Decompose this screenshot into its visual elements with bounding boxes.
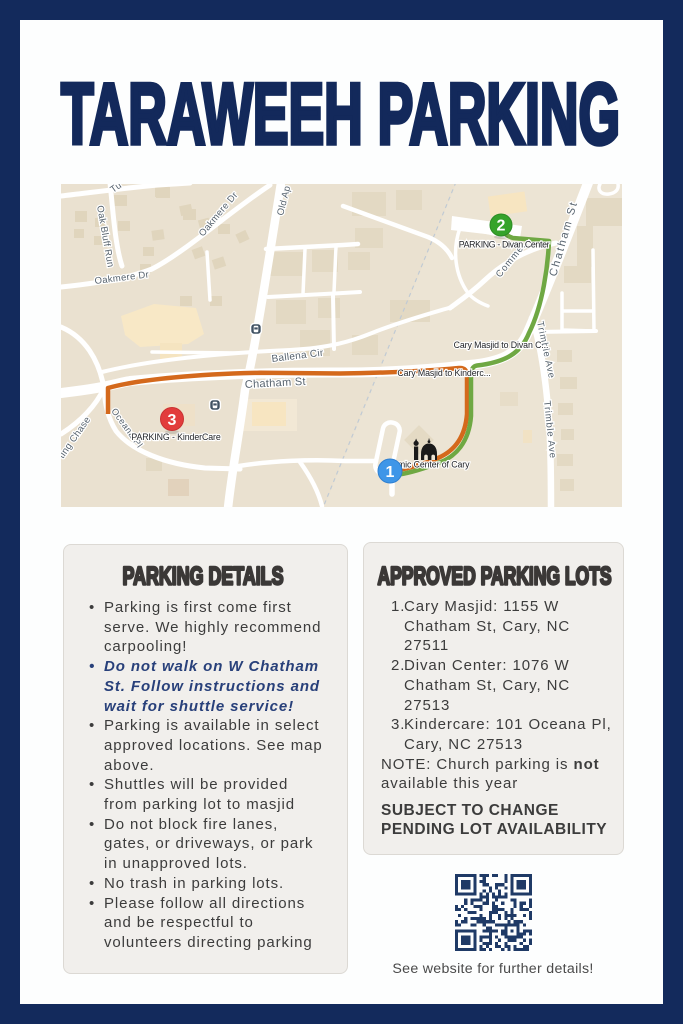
svg-text:2: 2 [497,218,506,235]
svg-text:3: 3 [168,412,177,429]
svg-text:PARKING DETAILS: PARKING DETAILS [123,563,284,591]
svg-text:Cary Masjid to Kinderc...: Cary Masjid to Kinderc... [397,368,490,378]
svg-text:APPROVED PARKING LOTS: APPROVED PARKING LOTS [378,563,612,589]
svg-text:Cary Masjid to Divan C...: Cary Masjid to Divan C... [454,340,549,350]
svg-text:1: 1 [386,464,395,481]
svg-text:PARKING - Divan Center: PARKING - Divan Center [459,240,550,250]
